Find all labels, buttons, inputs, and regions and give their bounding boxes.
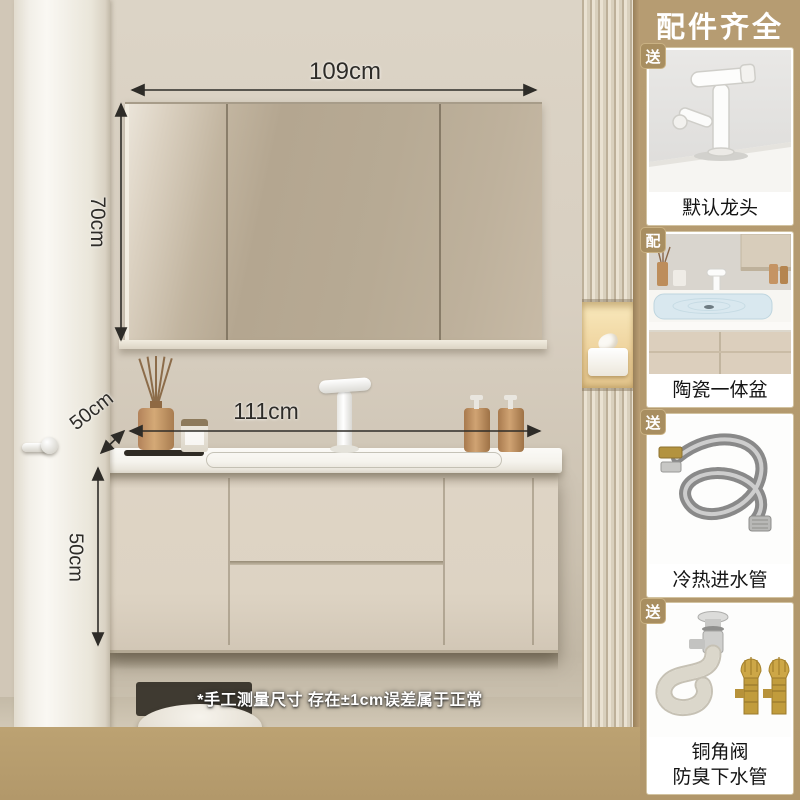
dimension-mirror-width: 109cm bbox=[270, 58, 420, 86]
vanity-cabinet bbox=[108, 473, 558, 653]
accessory-card-faucet: 送 默认龙头 bbox=[646, 47, 794, 226]
bathroom-scene: 109cm 70cm 111cm 50cm 50cm *手工测量尺寸 存在±1c… bbox=[0, 0, 640, 800]
mirror-cabinet bbox=[125, 102, 542, 340]
sidebar-title: 配件齐全 bbox=[640, 4, 800, 46]
reed-diffuser bbox=[134, 358, 180, 454]
accessory-label: 默认龙头 bbox=[647, 193, 793, 220]
panel-groove bbox=[582, 388, 634, 391]
faucet-icon bbox=[649, 50, 791, 192]
drawer-gap bbox=[230, 561, 443, 565]
cabinet-shadow bbox=[108, 653, 558, 670]
integrated-basin-outline bbox=[206, 452, 502, 468]
gift-badge: 送 bbox=[640, 598, 666, 624]
accessory-label: 铜角阀 防臭下水管 bbox=[647, 740, 793, 790]
accessory-card-hose: 送 冷热进水管 bbox=[646, 413, 794, 598]
cabinet-door-seam bbox=[443, 478, 445, 645]
door-handle bbox=[22, 435, 58, 457]
gift-badge: 送 bbox=[640, 409, 666, 435]
hose-icon bbox=[649, 416, 791, 564]
measurement-note: *手工测量尺寸 存在±1cm误差属于正常 bbox=[150, 686, 530, 710]
mirror-door-seam bbox=[439, 104, 441, 340]
accessory-label: 冷热进水管 bbox=[647, 565, 793, 592]
cabinet-door-seam bbox=[532, 478, 534, 645]
soap-bottles bbox=[464, 402, 528, 452]
faucet-base bbox=[330, 445, 359, 453]
product-image: 109cm 70cm 111cm 50cm 50cm *手工测量尺寸 存在±1c… bbox=[0, 0, 800, 800]
faucet-body bbox=[337, 390, 352, 448]
gift-badge: 送 bbox=[640, 43, 666, 69]
included-badge: 配 bbox=[640, 227, 666, 253]
dimension-mirror-height: 70cm bbox=[85, 191, 109, 253]
accessory-card-basin: 配 bbox=[646, 231, 794, 408]
mirror-cabinet-shelf bbox=[119, 340, 547, 349]
footer-bar: 110cm 普通风水镜柜+陶瓷一体盆 (可定制颜色/台面/台盆/尺寸/切角 详情… bbox=[0, 727, 640, 800]
basin-icon bbox=[649, 234, 791, 374]
tissue-box bbox=[588, 348, 628, 376]
accessory-label-line1: 铜角阀 bbox=[647, 740, 793, 765]
soap-bottle bbox=[464, 408, 490, 452]
dimension-counter-width: 111cm bbox=[196, 398, 336, 425]
faucet-spout bbox=[319, 377, 372, 394]
accessories-sidebar: 配件齐全 送 默认龙头 bbox=[640, 0, 800, 800]
accessory-label-line2: 防臭下水管 bbox=[647, 765, 793, 790]
drain-valve-icon bbox=[649, 605, 791, 737]
soap-bottle bbox=[498, 408, 524, 452]
accessory-label: 陶瓷一体盆 bbox=[647, 375, 793, 402]
dimension-cabinet-height: 50cm bbox=[64, 528, 87, 588]
mirror-door-seam bbox=[226, 104, 228, 340]
accessory-card-drain: 送 bbox=[646, 602, 794, 795]
wall-trim-strip bbox=[633, 0, 640, 800]
